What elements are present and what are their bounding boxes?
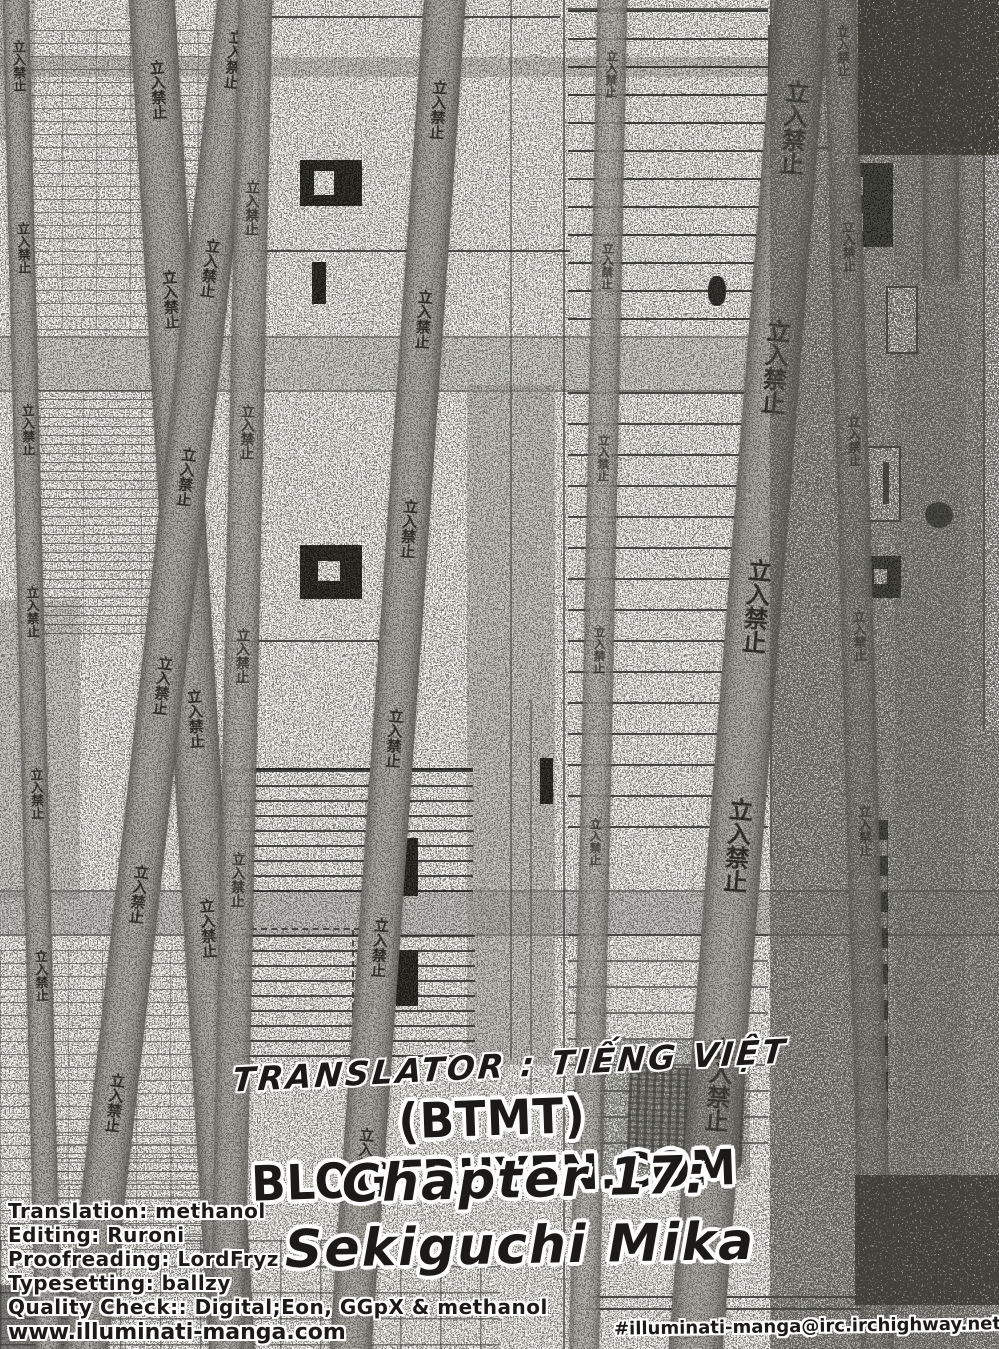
website-url: www.illuminati-manga.com	[8, 1320, 346, 1345]
plan-line-center-vertical	[510, 0, 512, 1060]
page-edge-line	[983, 0, 985, 730]
plan-line-lower-court	[530, 700, 532, 1100]
credits-block: Translation: methanol Editing: Ruroni Pr…	[8, 1199, 548, 1319]
caution-tape-text: 立入禁止	[933, 0, 949, 280]
manga-page-scan: 立入禁止 立入禁止 立入禁止 立入禁止 立入禁止 立入禁止 立入禁止 立入禁止 …	[0, 0, 999, 1349]
plan-line-panel-bottom	[230, 250, 570, 252]
stair-column-2	[396, 950, 418, 1006]
caution-tape-8-short: 立入禁止	[923, 0, 959, 280]
plan-line-bottom-right-1	[590, 1296, 890, 1298]
rooftop-unit-1	[300, 160, 362, 206]
walkway-band-middle	[0, 336, 770, 392]
credit-line-proofreading: Proofreading: LordFryz	[8, 1247, 548, 1271]
rooftop-vent	[312, 262, 326, 304]
court-structure-window-2	[874, 569, 887, 584]
credit-line-typesetting: Typesetting: ballzy	[8, 1271, 548, 1295]
rooftop-unit-2	[300, 545, 362, 599]
credit-line-translation: Translation: methanol	[8, 1199, 548, 1223]
plan-line-top-panel	[230, 16, 560, 18]
walkway-mark	[540, 758, 553, 804]
rooftop-unit-2-window	[318, 561, 340, 581]
credit-line-editing: Editing: Ruroni	[8, 1223, 548, 1247]
rooftop-unit-1-window	[314, 171, 334, 195]
plan-line-bottom-right-2	[585, 1308, 895, 1310]
page-margin-right	[985, 0, 999, 730]
court-cabinet-2-slot	[883, 462, 889, 504]
court-dark-blob-3	[708, 276, 726, 306]
stair-stripes-left-upper	[228, 768, 473, 892]
credit-line-quality-check: Quality Check:: Digital;Eon, GGpX & meth…	[8, 1295, 548, 1319]
court-dark-blob-1	[925, 502, 953, 528]
court-cabinet-1	[886, 286, 918, 354]
